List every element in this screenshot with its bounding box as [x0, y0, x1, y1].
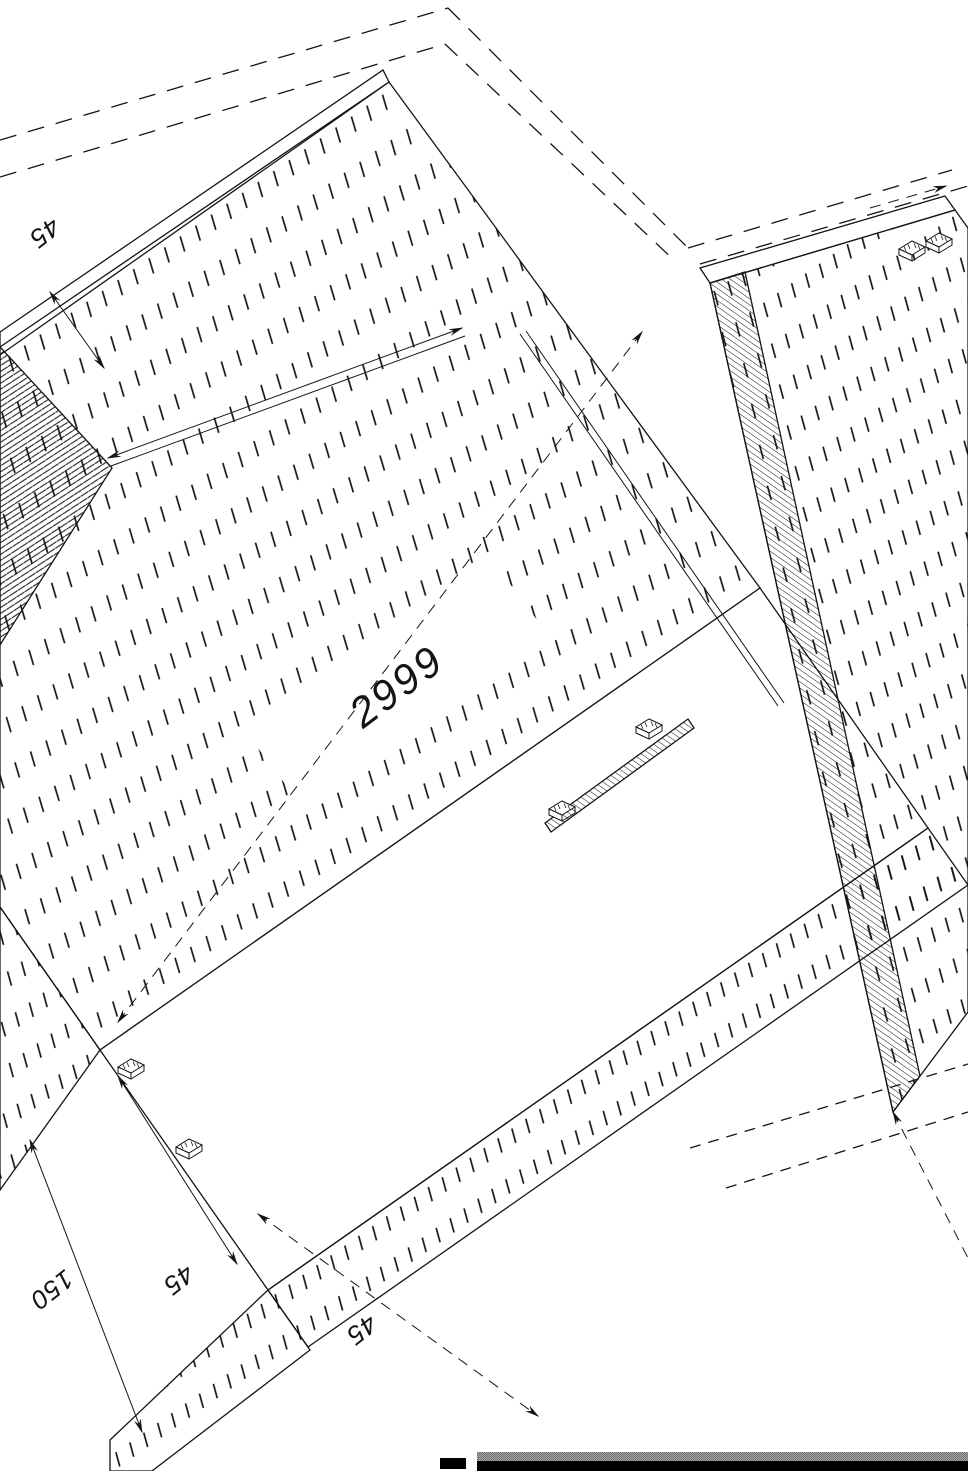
dimension-label-left-inner: 45: [158, 1259, 201, 1302]
bottom-bar-black-band: [477, 1461, 968, 1471]
left-panel-corner-hatch: [110, 1290, 310, 1471]
bottom-bar-stub: [440, 1458, 466, 1469]
bottom-scrollbar[interactable]: [440, 1452, 968, 1471]
dimension-label-thickness: 45: [24, 212, 67, 255]
drawing-viewport: 2999 45 150 45 45: [0, 0, 968, 1471]
bottom-bar-gray-band[interactable]: [477, 1452, 968, 1461]
dimension-label-left-outer: 150: [24, 1264, 79, 1316]
technical-drawing: 2999 45 150 45 45: [0, 0, 968, 1471]
leader-bottom-right: [893, 1112, 968, 1258]
